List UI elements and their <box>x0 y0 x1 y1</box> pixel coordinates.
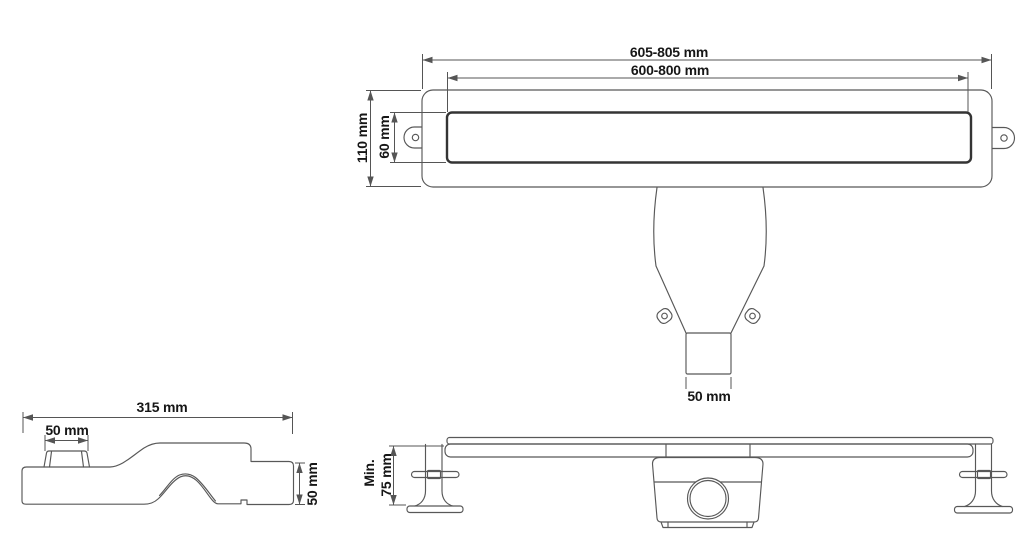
dim-label-top-grate-height: 60 mm <box>377 115 391 158</box>
dim-label-front-min-height: 75 mm <box>379 453 393 496</box>
drawing-linework <box>0 0 1024 544</box>
dim-label-top-outer-width: 605-805 mm <box>630 45 708 59</box>
front-view <box>389 438 1013 528</box>
front-view-right-foot <box>955 444 1013 513</box>
dim-label-side-outlet-height: 50 mm <box>305 462 319 505</box>
top-view-outlet-pipe <box>686 333 731 374</box>
top-view-grate <box>447 113 971 163</box>
front-view-trap-skirt <box>661 522 754 528</box>
funnel-right-tab-hole <box>750 313 756 319</box>
dim-label-top-outlet-width: 50 mm <box>684 389 733 403</box>
dim-label-top-height: 110 mm <box>355 113 369 163</box>
front-view-outlet-outer-circle <box>688 478 729 519</box>
funnel-left-tab <box>655 307 674 326</box>
dim-label-side-inlet-width: 50 mm <box>45 423 88 437</box>
front-view-channel <box>445 444 973 457</box>
dim-label-top-inner-width: 600-800 mm <box>631 63 709 77</box>
funnel-right-tab <box>743 307 762 326</box>
funnel-left-tab-hole <box>662 313 668 319</box>
top-view <box>366 54 1015 401</box>
top-view-right-mount-hole <box>1001 135 1007 141</box>
side-view-inlet-stub-inner-lines <box>50 452 84 468</box>
dimension-front-min-height <box>389 446 444 505</box>
top-view-channel-body <box>422 90 992 187</box>
dim-label-front-min-prefix: Min. <box>362 459 376 486</box>
top-view-right-mount-tab <box>992 128 1015 149</box>
front-view-left-foot <box>407 445 463 513</box>
funnel-right-edge <box>731 188 766 334</box>
technical-drawing-canvas: 605-805 mm 600-800 mm 110 mm 60 mm 50 mm… <box>0 0 1024 544</box>
top-view-left-mount-hole <box>412 134 418 140</box>
top-view-left-mount-tab <box>404 127 422 148</box>
side-view-trap-outline <box>22 443 294 505</box>
front-view-top-lip <box>447 438 993 445</box>
front-view-trap-neck <box>666 445 750 457</box>
dimension-top-grate-height <box>390 113 446 163</box>
dim-label-side-length: 315 mm <box>137 400 188 414</box>
dimension-top-inner-width <box>448 72 969 112</box>
